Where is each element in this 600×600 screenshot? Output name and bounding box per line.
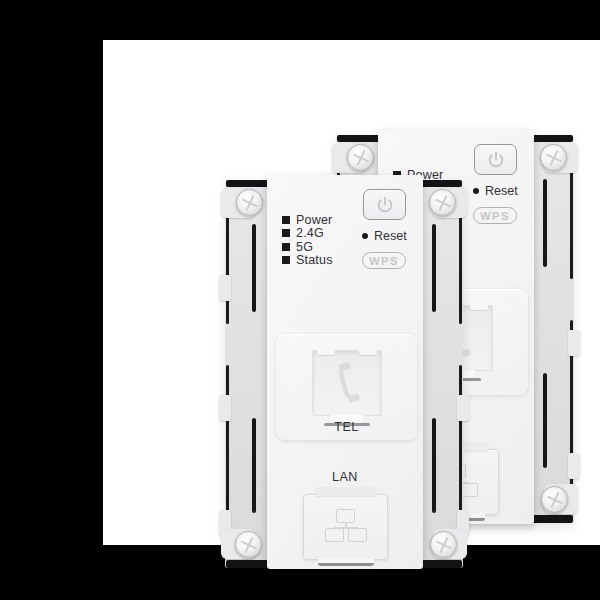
led-row-power: Power <box>282 213 333 227</box>
led-label: Status <box>296 253 333 267</box>
tel-port-jack <box>312 350 382 416</box>
frame-clip-tab <box>568 330 580 356</box>
led-square-icon <box>282 256 290 264</box>
led-label: 2.4G <box>296 226 324 240</box>
power-standby-icon <box>375 195 395 215</box>
jack-notch <box>317 345 335 355</box>
power-button[interactable] <box>363 189 406 220</box>
lan-port-jack <box>303 494 388 560</box>
wps-button[interactable]: WPS <box>362 252 406 269</box>
reset-control: Reset <box>473 184 518 198</box>
frame-clip-tab <box>219 395 231 421</box>
phone-handset-icon <box>333 361 363 405</box>
tel-port-label: TEL <box>276 420 417 434</box>
reset-label: Reset <box>374 229 407 243</box>
screw-head-icon <box>430 531 457 558</box>
device-front: Power 2.4G 5G Status <box>225 180 463 568</box>
screw-head-icon <box>541 486 568 513</box>
screw-head-icon <box>429 189 456 216</box>
screw-head-icon <box>236 189 263 216</box>
frame-clip-tab <box>457 395 469 421</box>
jack-foot <box>318 558 374 566</box>
power-button[interactable] <box>474 144 517 175</box>
jack-notch <box>470 300 488 310</box>
led-indicator-block: Power 2.4G 5G Status <box>282 213 333 267</box>
faceplate: Power 2.4G 5G Status <box>267 175 423 569</box>
wps-button[interactable]: WPS <box>473 207 517 224</box>
frame-slot <box>543 179 547 267</box>
network-nodes-icon <box>325 528 344 542</box>
screw-head-icon <box>540 144 567 171</box>
led-square-icon <box>282 229 290 237</box>
reset-pinhole-icon[interactable] <box>473 188 479 194</box>
power-standby-icon <box>486 150 506 170</box>
jack-notch <box>359 345 377 355</box>
frame-slot <box>432 418 436 513</box>
led-square-icon <box>282 243 290 251</box>
network-nodes-icon <box>348 528 367 542</box>
reset-control: Reset <box>362 229 407 243</box>
photo-background: Power Reset WPS <box>103 40 600 545</box>
led-label: Power <box>296 213 332 227</box>
tel-port-plate: TEL <box>276 334 417 440</box>
led-square-icon <box>282 216 290 224</box>
frame-clip-tab <box>219 275 231 301</box>
lan-port-label: LAN <box>267 470 423 484</box>
frame-slot <box>432 224 436 312</box>
led-row-status: Status <box>282 254 333 268</box>
reset-pinhole-icon[interactable] <box>362 233 368 239</box>
network-nodes-icon <box>336 509 355 523</box>
reset-label: Reset <box>485 184 518 198</box>
led-row-24g: 2.4G <box>282 227 333 241</box>
frame-clip-tab <box>568 453 580 479</box>
frame-slot <box>252 418 256 513</box>
led-label: 5G <box>296 240 313 254</box>
frame-slot <box>543 373 547 468</box>
led-row-5g: 5G <box>282 240 333 254</box>
jack-notch <box>315 487 377 496</box>
frame-slot <box>252 224 256 312</box>
screw-head-icon <box>347 144 374 171</box>
screw-head-icon <box>235 531 262 558</box>
